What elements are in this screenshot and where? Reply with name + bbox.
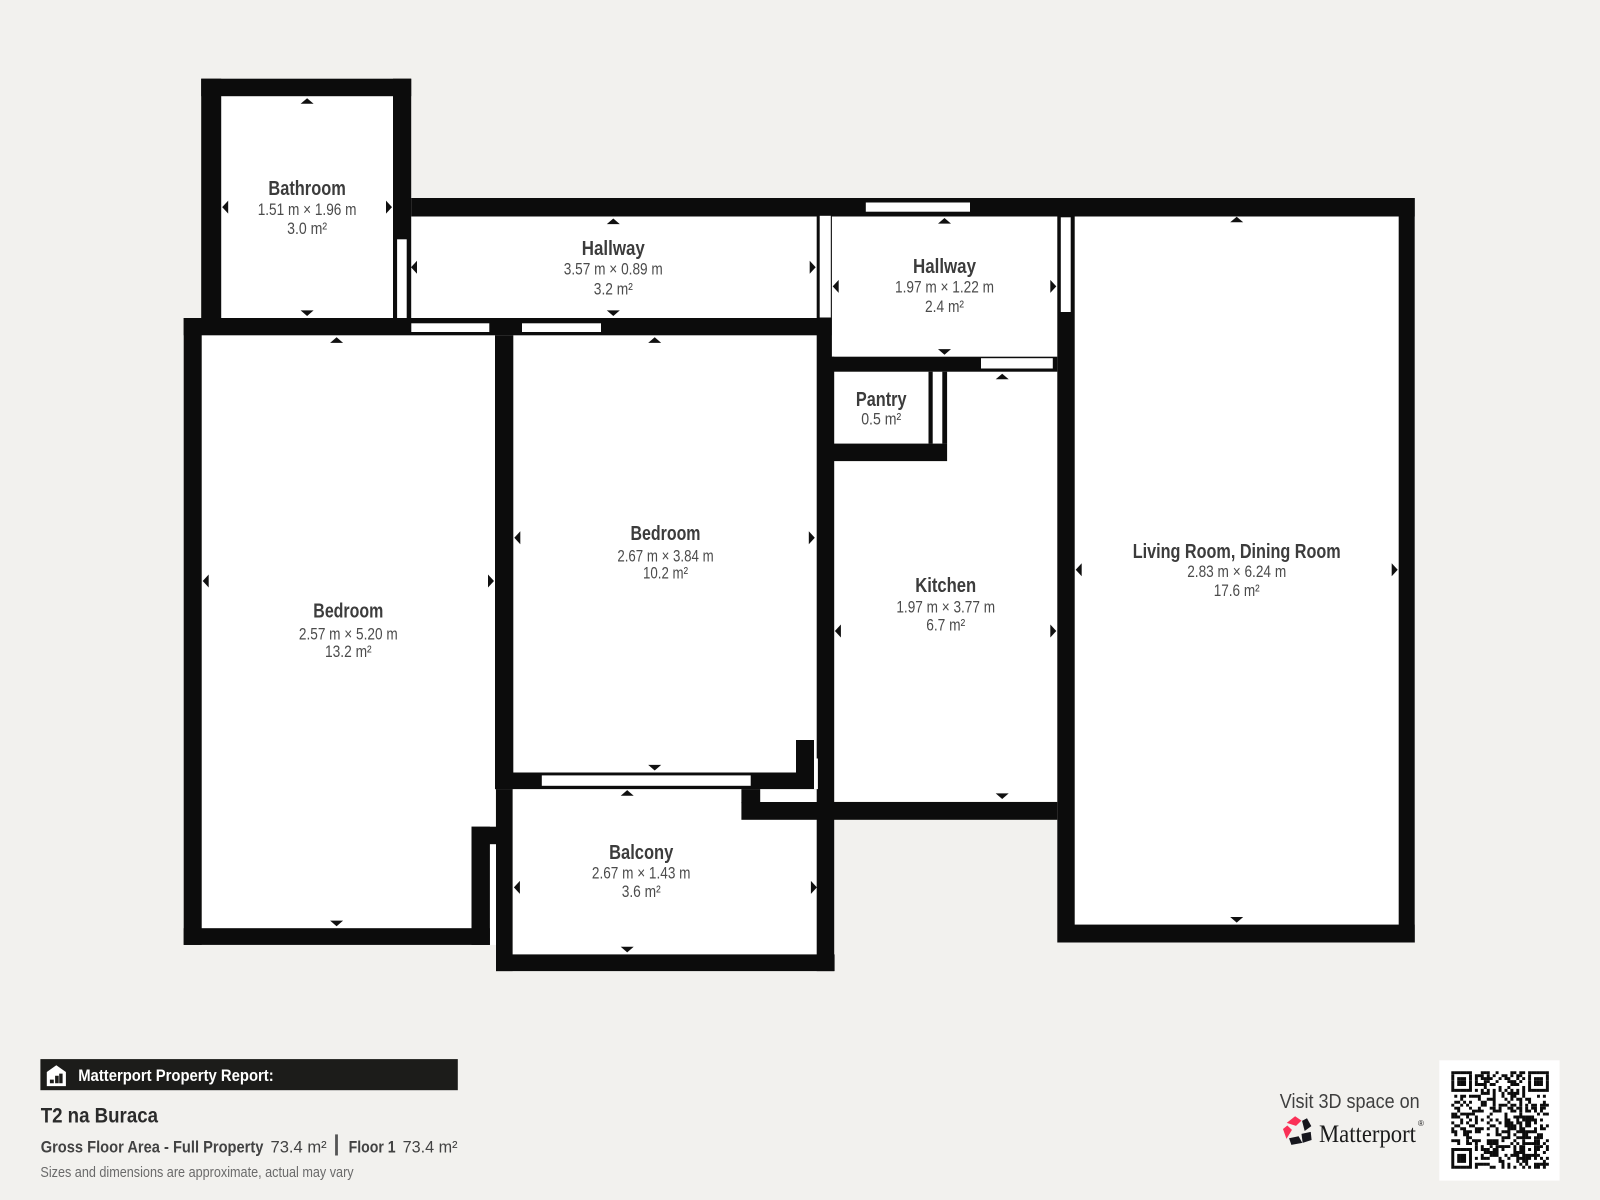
svg-text:10.2 m²: 10.2 m² xyxy=(643,564,688,583)
svg-text:1.97 m × 1.22 m: 1.97 m × 1.22 m xyxy=(895,278,994,297)
svg-text:3.57 m × 0.89 m: 3.57 m × 0.89 m xyxy=(564,260,663,279)
svg-text:1.97 m × 3.77 m: 1.97 m × 3.77 m xyxy=(896,598,995,617)
svg-text:2.67 m × 1.43 m: 2.67 m × 1.43 m xyxy=(592,863,691,882)
svg-text:Floor 1: Floor 1 xyxy=(349,1138,396,1157)
svg-text:1.51 m × 1.96 m: 1.51 m × 1.96 m xyxy=(258,200,357,219)
svg-text:13.2 m²: 13.2 m² xyxy=(325,642,372,661)
svg-text:Balcony: Balcony xyxy=(609,842,674,864)
svg-text:2.83 m × 6.24 m: 2.83 m × 6.24 m xyxy=(1187,562,1286,581)
svg-text:Hallway: Hallway xyxy=(582,238,646,260)
svg-text:2.4 m²: 2.4 m² xyxy=(925,297,964,316)
svg-text:Bathroom: Bathroom xyxy=(268,178,346,200)
svg-text:Living Room, Dining Room: Living Room, Dining Room xyxy=(1133,541,1341,563)
svg-text:Bedroom: Bedroom xyxy=(313,600,383,622)
svg-text:6.7 m²: 6.7 m² xyxy=(926,615,965,634)
svg-text:Kitchen: Kitchen xyxy=(915,575,976,597)
svg-text:®: ® xyxy=(1418,1119,1424,1128)
svg-text:3.6 m²: 3.6 m² xyxy=(622,882,661,901)
svg-text:73.4 m²: 73.4 m² xyxy=(271,1138,328,1157)
svg-text:Visit 3D space on: Visit 3D space on xyxy=(1280,1091,1420,1113)
svg-text:2.57 m × 5.20 m: 2.57 m × 5.20 m xyxy=(299,624,398,643)
svg-text:17.6 m²: 17.6 m² xyxy=(1214,581,1260,600)
svg-text:0.5 m²: 0.5 m² xyxy=(861,410,901,429)
svg-text:Matterport: Matterport xyxy=(1319,1121,1416,1148)
svg-text:Matterport Property Report:: Matterport Property Report: xyxy=(78,1066,274,1085)
svg-text:Sizes and dimensions are appro: Sizes and dimensions are approximate, ac… xyxy=(40,1164,354,1181)
svg-text:3.2 m²: 3.2 m² xyxy=(594,279,633,298)
svg-text:T2 na Buraca: T2 na Buraca xyxy=(41,1104,159,1127)
svg-text:Pantry: Pantry xyxy=(856,389,907,411)
svg-text:Bedroom: Bedroom xyxy=(631,523,701,545)
svg-text:73.4 m²: 73.4 m² xyxy=(403,1138,458,1157)
svg-text:Hallway: Hallway xyxy=(913,256,977,278)
svg-text:3.0 m²: 3.0 m² xyxy=(287,219,327,238)
svg-text:2.67 m × 3.84 m: 2.67 m × 3.84 m xyxy=(617,546,713,565)
svg-text:Gross Floor Area - Full Proper: Gross Floor Area - Full Property xyxy=(41,1138,264,1157)
